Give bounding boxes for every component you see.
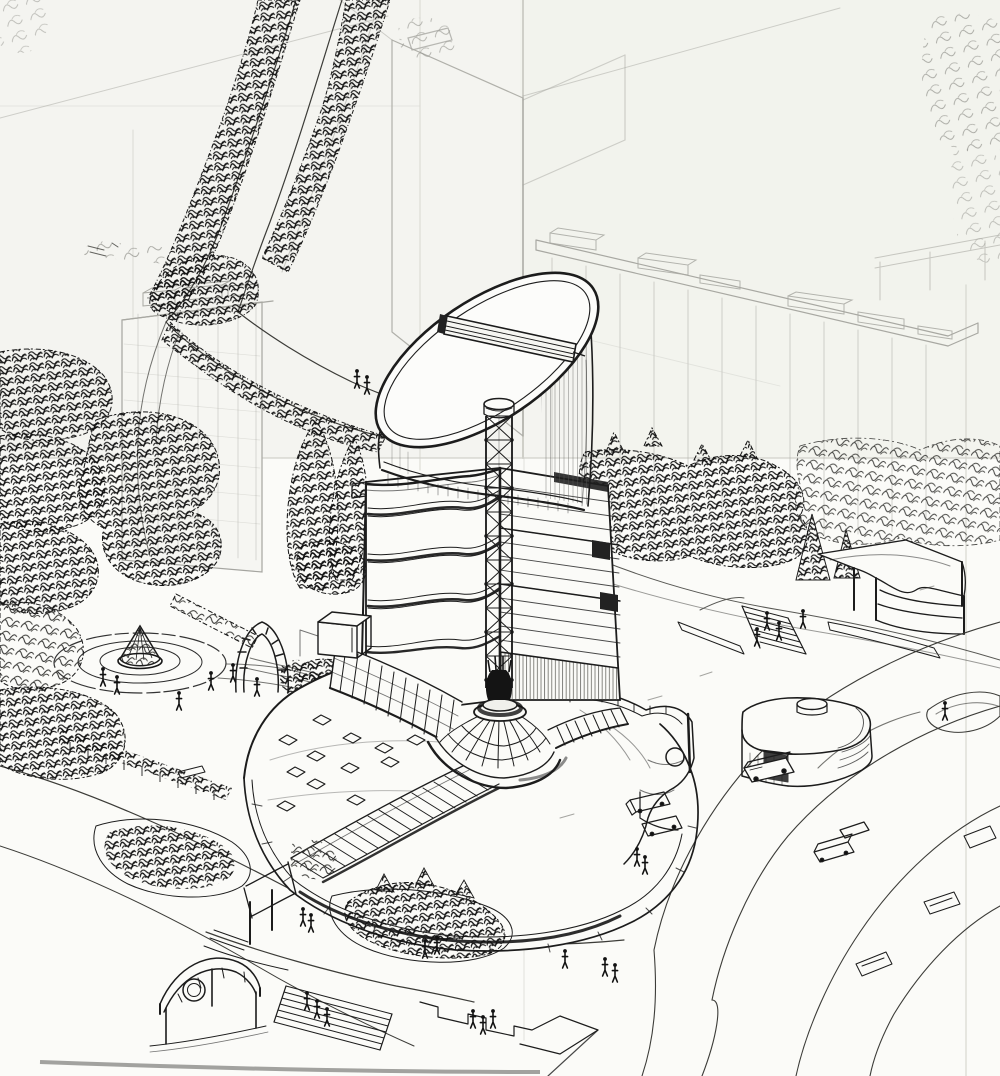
sketch-page: Aerial perspective sketch — tower with s… xyxy=(0,0,1000,1076)
sketch-canvas: Aerial perspective sketch — tower with s… xyxy=(0,0,1000,1076)
